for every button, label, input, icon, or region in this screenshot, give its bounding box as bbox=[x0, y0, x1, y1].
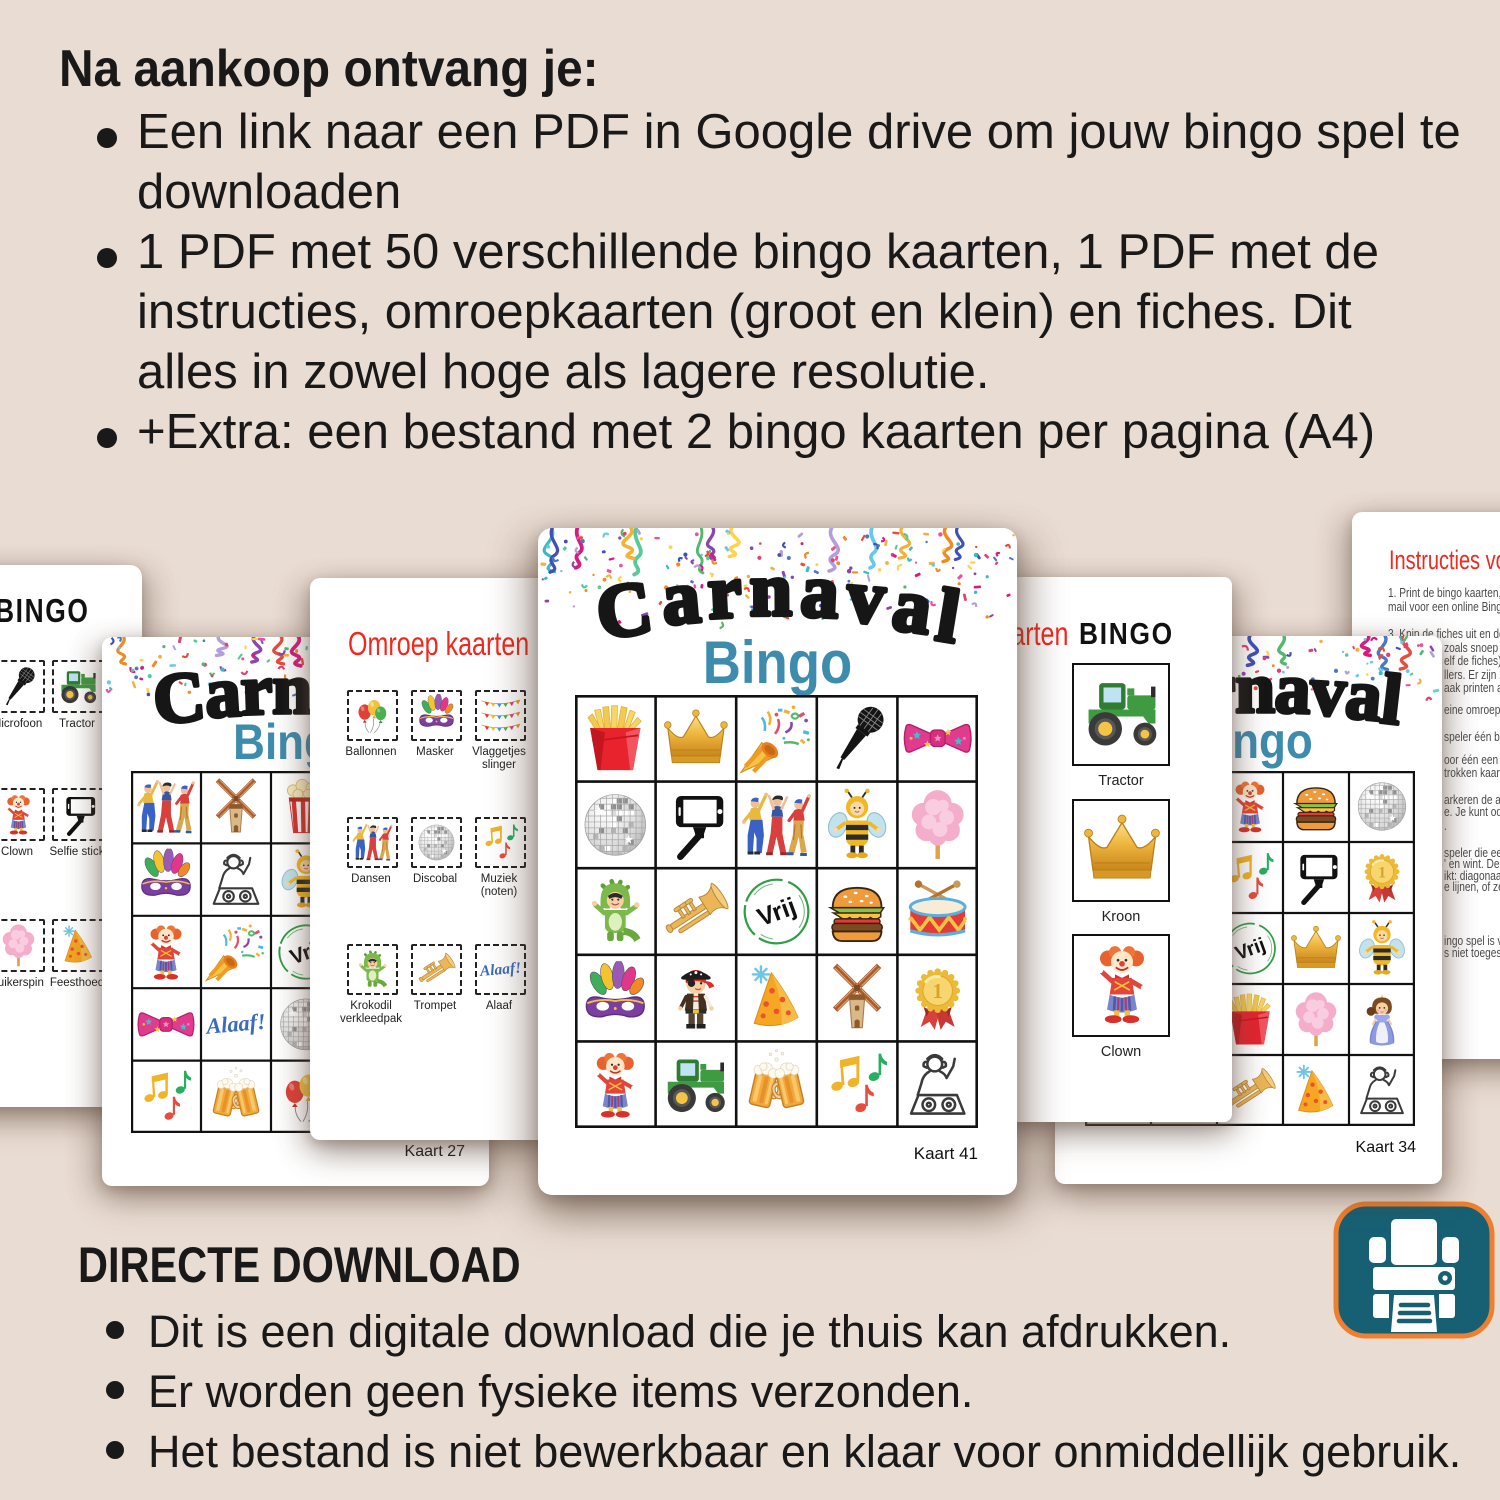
svg-text:a: a bbox=[799, 549, 840, 635]
svg-text:r: r bbox=[705, 550, 743, 636]
svg-text:n: n bbox=[749, 548, 792, 632]
